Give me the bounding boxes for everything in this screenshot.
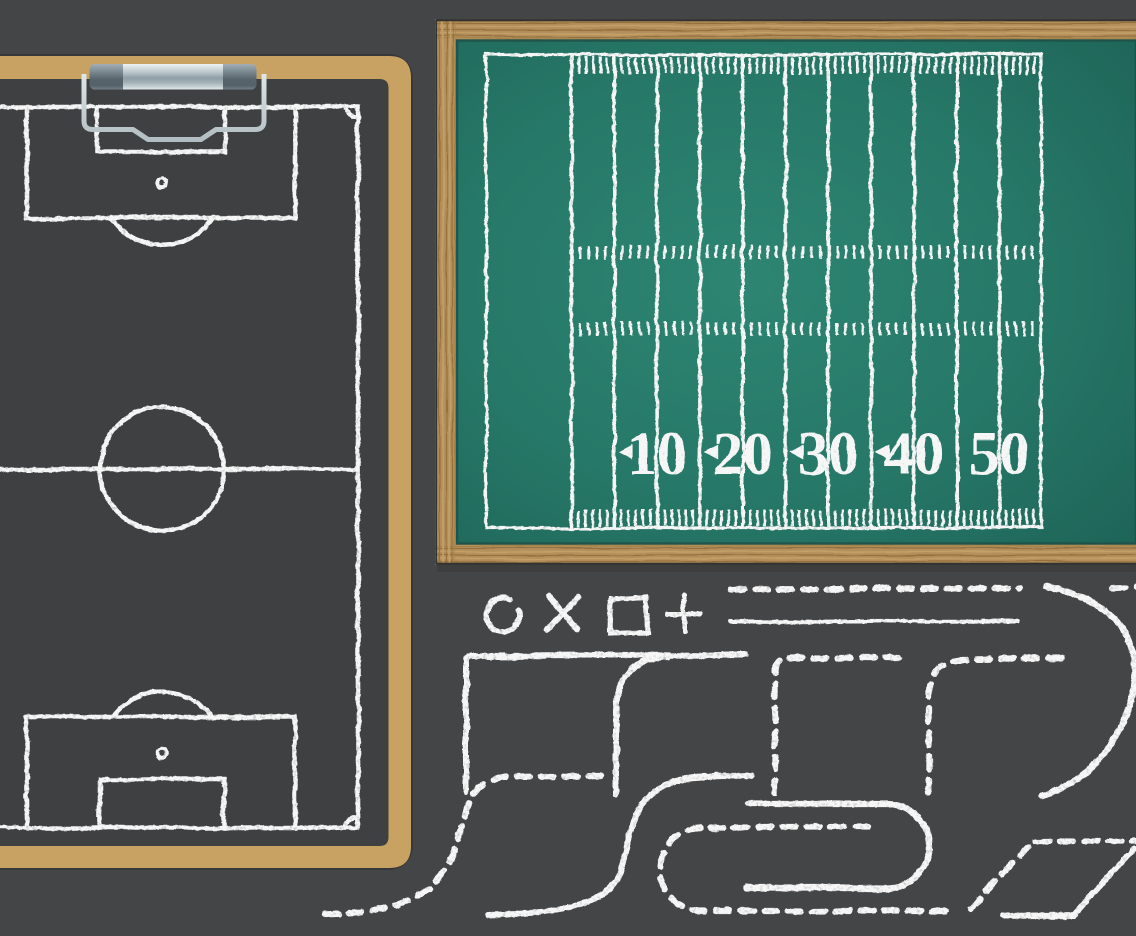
svg-text:30: 30 <box>798 421 859 488</box>
svg-text:40: 40 <box>883 421 944 488</box>
svg-text:50: 50 <box>969 421 1030 488</box>
svg-text:20: 20 <box>712 421 773 488</box>
svg-text:10: 10 <box>627 421 688 488</box>
